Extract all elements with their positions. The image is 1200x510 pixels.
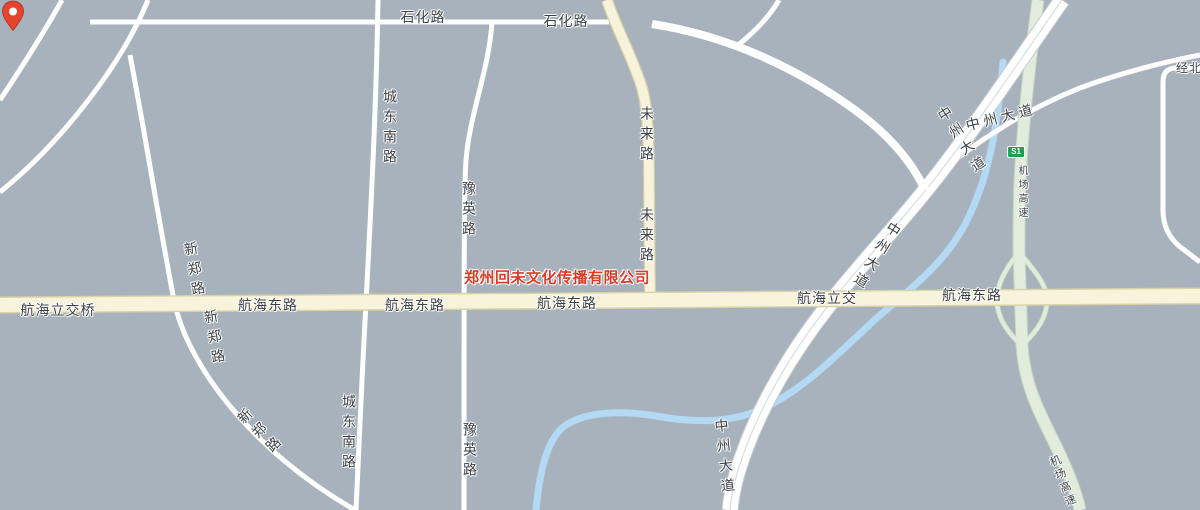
location-pin-icon[interactable] [0, 0, 26, 32]
road-label-jingbei: 经北 [1176, 62, 1200, 74]
road-hanghai-donglu [0, 296, 1200, 305]
road-label-hanghai-lijiao: 航海立交 [797, 291, 857, 305]
pin-center-dot [9, 8, 17, 16]
road-label-weilailu-bottom: 未来路 [640, 207, 654, 267]
map-canvas[interactable]: 石化路 石化路 航海立交桥 航海东路 航海东路 航海东路 航海立交 航海东路 经… [0, 0, 1200, 510]
road-label-hanghai-donglu-2: 航海东路 [385, 298, 445, 312]
road-label-shihualu-1: 石化路 [401, 10, 446, 24]
expressway-jichang-gaosu [1019, 0, 1080, 510]
road-jingbei [1163, 68, 1200, 262]
road-chengdongnanlu [356, 0, 378, 510]
map-roads-layer [0, 0, 1200, 510]
road-label-jichang-gaosu-vertical: 机场高速 [1016, 165, 1026, 221]
road-label-hanghai-donglu-1: 航海东路 [238, 298, 298, 312]
road-shihualu-east-curve [652, 24, 925, 190]
road-label-shihualu-2: 石化路 [544, 14, 589, 28]
road-label-weilailu-top: 未来路 [640, 106, 654, 166]
pin-body [3, 1, 24, 31]
road-label-hanghai-lijiaoqiao: 航海立交桥 [21, 303, 96, 317]
road-zhongzhou-dadao [730, 0, 1062, 510]
company-label: 郑州回未文化传播有限公司 [464, 271, 650, 286]
road-label-chengdongnanlu-bottom: 城东南路 [342, 394, 356, 474]
road-xinzhenglu [130, 55, 355, 510]
road-label-hanghai-donglu-3: 航海东路 [537, 296, 597, 310]
road-label-yuyinglu-top: 豫英路 [462, 181, 476, 241]
expressway-shield-s1: S1 [1007, 146, 1025, 158]
road-label-yuyinglu-bottom: 豫英路 [463, 422, 477, 482]
road-shihualu-branch [737, 0, 779, 46]
road-label-hanghai-donglu-4: 航海东路 [942, 288, 1002, 302]
road-label-chengdongnanlu-top: 城东南路 [383, 89, 397, 169]
